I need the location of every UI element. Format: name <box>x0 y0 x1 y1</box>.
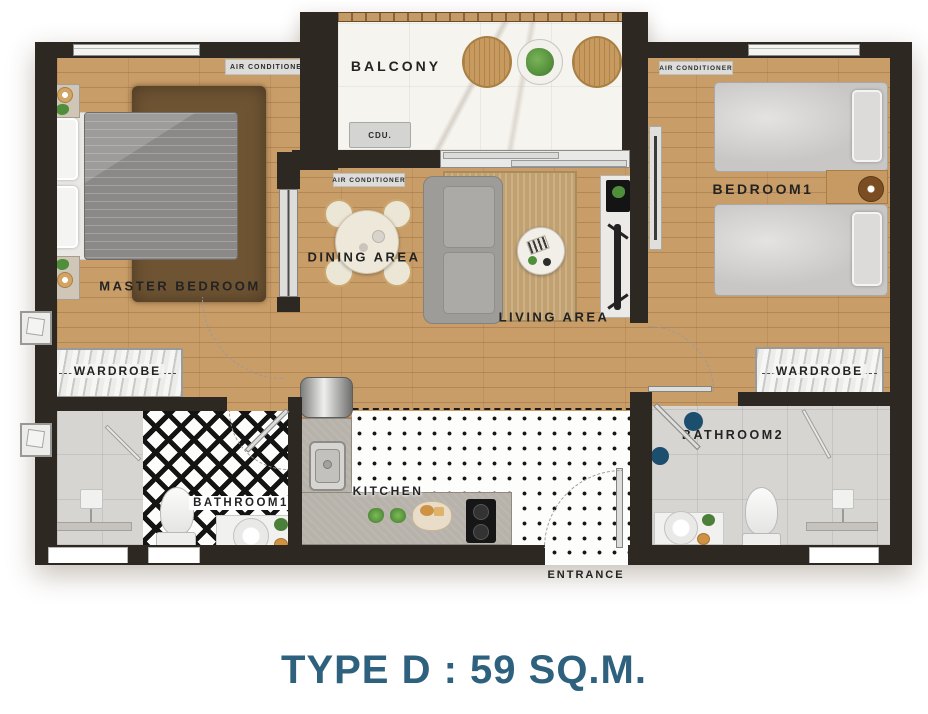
wall-living-bedroom1 <box>630 42 648 323</box>
kitchen-faucet <box>323 460 332 469</box>
vanity2-tray <box>697 533 710 545</box>
balcony-label: BALCONY <box>351 58 441 74</box>
cdu-unit: CDU. <box>349 122 411 148</box>
bread <box>420 505 434 516</box>
wardrobe-right: WARDROBE <box>755 347 884 398</box>
wall-bathroom1-right <box>288 397 302 545</box>
bedroom1-lamp <box>858 176 884 202</box>
media-plant <box>612 186 625 198</box>
dining-table-plate1 <box>372 230 385 243</box>
wall-foyer-bathroom2 <box>630 392 652 545</box>
wall-bathroom1-north <box>57 397 227 411</box>
wardrobe-left: WARDROBE <box>52 348 183 398</box>
balcony-slider-pane-2 <box>511 160 627 167</box>
kitchen-plant-2 <box>390 508 406 523</box>
stove-burner-2 <box>473 524 489 540</box>
bed1-pillow <box>852 90 882 162</box>
balcony-chair-right <box>572 36 622 88</box>
sofa-cushion-bottom <box>443 252 495 314</box>
dining-area-label: DINING AREA <box>308 250 421 265</box>
wall-balcony-left <box>300 12 338 170</box>
bread-2 <box>434 507 444 516</box>
bathroom2-shower-pipe <box>842 509 844 522</box>
balcony-chair-left <box>462 36 512 88</box>
water-heater <box>300 377 353 418</box>
living-area-label: LIVING AREA <box>499 310 610 325</box>
lamp-bottom <box>57 272 73 288</box>
ac-label-dining: AIR CONDITIONER <box>333 173 405 187</box>
window-master <box>73 44 200 56</box>
balcony-slider-pane-1 <box>443 152 559 159</box>
wall-right <box>890 42 912 565</box>
balcony-plant <box>526 48 554 76</box>
bathroom1-shower-panel <box>80 489 103 509</box>
wardrobe-right-label: WARDROBE <box>773 364 866 378</box>
ac-label-master-text: AIR CONDITIONER <box>230 64 308 71</box>
vanity1-plant <box>274 518 288 531</box>
cdu-label: CDU. <box>368 131 392 140</box>
wall-bathroom2-north <box>738 392 890 406</box>
balcony-rail <box>322 12 638 22</box>
entrance-label: ENTRANCE <box>547 569 624 581</box>
wall-left <box>35 42 57 565</box>
kitchen-label: KITCHEN <box>353 484 424 498</box>
vanity2-basin <box>664 511 698 545</box>
stove-burner-1 <box>473 504 489 520</box>
ac-label-bedroom1-text: AIR CONDITIONER <box>659 65 733 72</box>
niche-bottom-mid <box>148 547 200 563</box>
ac-label-dining-text: AIR CONDITIONER <box>332 177 406 184</box>
bathroom2-shower-panel <box>832 489 854 509</box>
ac-label-bedroom1: AIR CONDITIONER <box>659 61 733 75</box>
bed2-pillow <box>852 212 882 286</box>
wall-dining-north <box>292 150 440 168</box>
bathroom1-label: BATHROOM1 <box>189 496 293 510</box>
coffee-table-bowl <box>543 258 551 266</box>
window-bedroom1 <box>748 44 860 56</box>
balcony-slider <box>440 150 630 168</box>
vanity2-plant <box>702 514 715 526</box>
bathroom2-label: BATHROOM2 <box>682 428 784 442</box>
master-duvet-fold <box>85 113 195 183</box>
niche-bottom-right <box>809 547 879 563</box>
floor-plan: CDU. BALCONY MASTER BEDROOM AIR CONDITIO… <box>0 0 928 714</box>
plan-title: TYPE D : 59 SQ.M. <box>0 648 928 693</box>
cutting-board <box>412 501 452 531</box>
bedroom1-mirror-line <box>654 136 657 240</box>
bathroom2-mat-2 <box>651 447 669 465</box>
bedroom1-label: BEDROOM1 <box>713 181 814 197</box>
sofa-cushion-top <box>443 186 495 248</box>
bathroom1-shower-pipe <box>90 509 92 523</box>
toilet2-bowl <box>745 487 778 535</box>
utility-box-lower-inner <box>26 429 45 448</box>
wardrobe-left-label: WARDROBE <box>71 364 164 378</box>
bathroom2-bench <box>806 522 878 531</box>
coffee-table-plant <box>528 256 537 265</box>
toilet1-bowl <box>160 487 194 535</box>
master-door-leaf <box>279 189 298 297</box>
master-bedroom-label: MASTER BEDROOM <box>99 279 260 294</box>
utility-box-upper-inner <box>26 317 45 336</box>
lamp-top <box>57 87 73 103</box>
niche-bottom-left <box>48 547 128 563</box>
bathroom1-bench <box>54 522 132 531</box>
